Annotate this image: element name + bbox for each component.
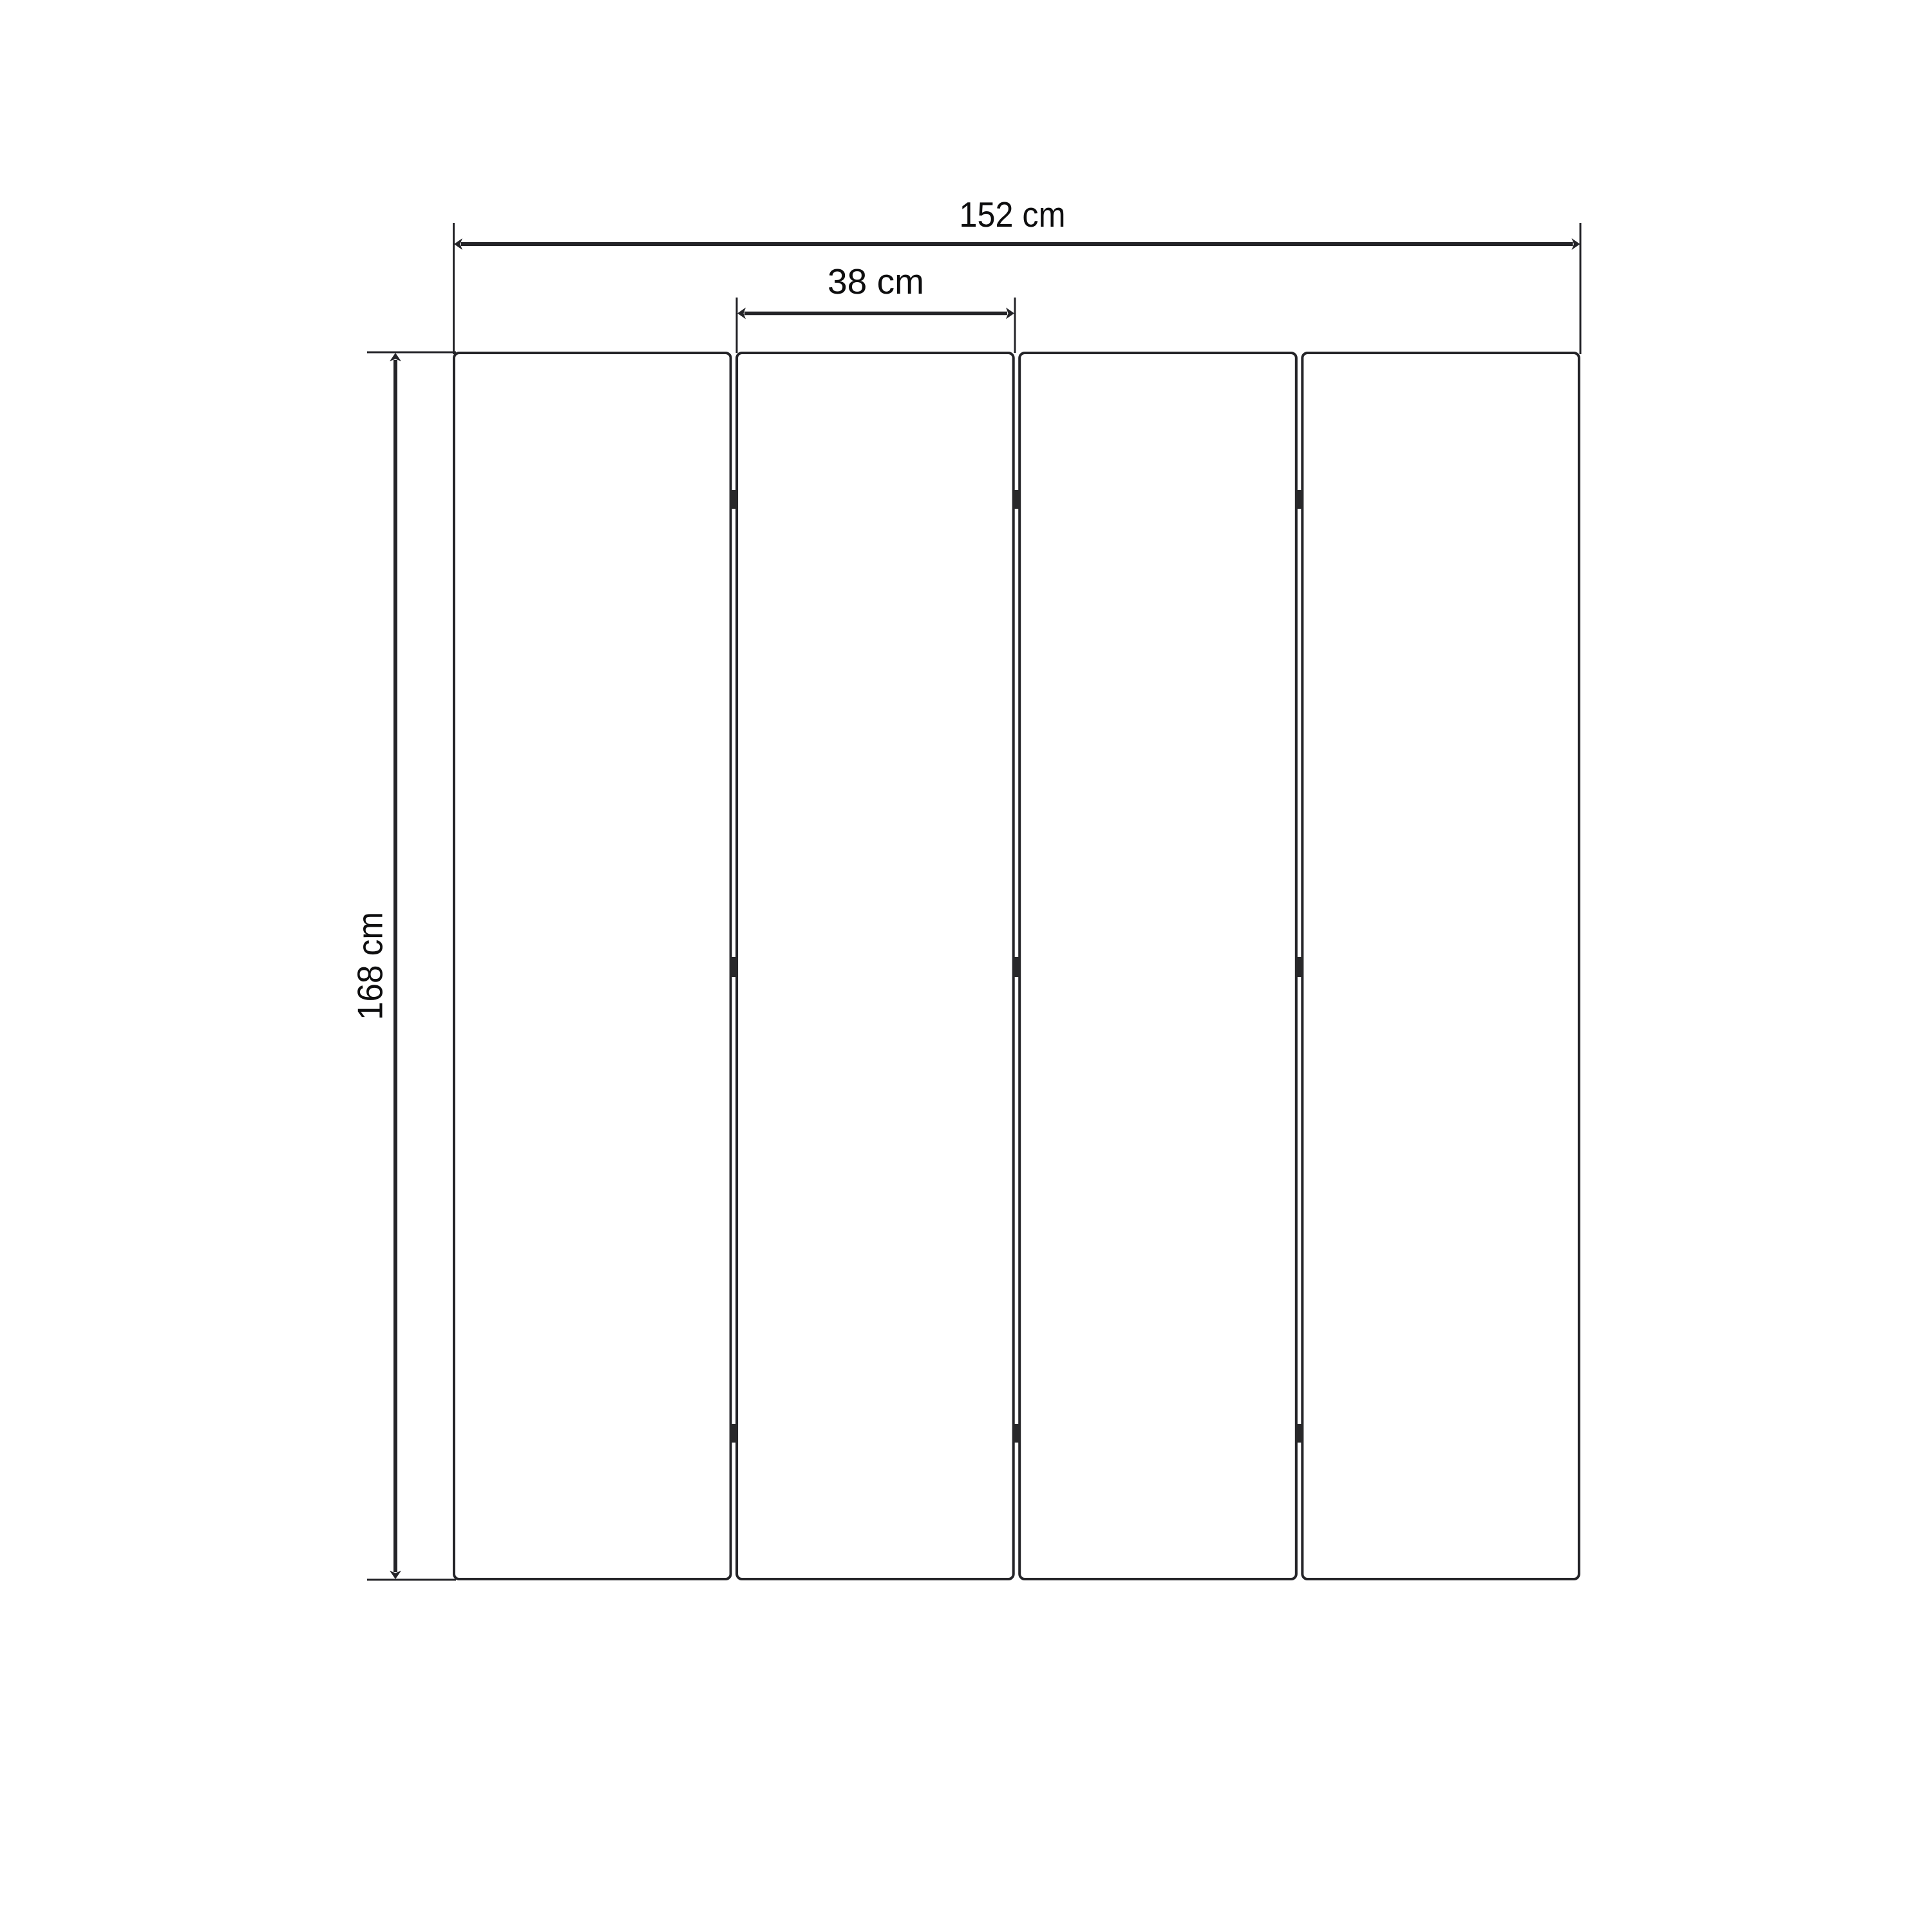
svg-text:38 cm: 38 cm [828, 261, 924, 301]
svg-text:152 cm: 152 cm [960, 194, 1066, 234]
svg-text:168 cm: 168 cm [350, 912, 390, 1020]
